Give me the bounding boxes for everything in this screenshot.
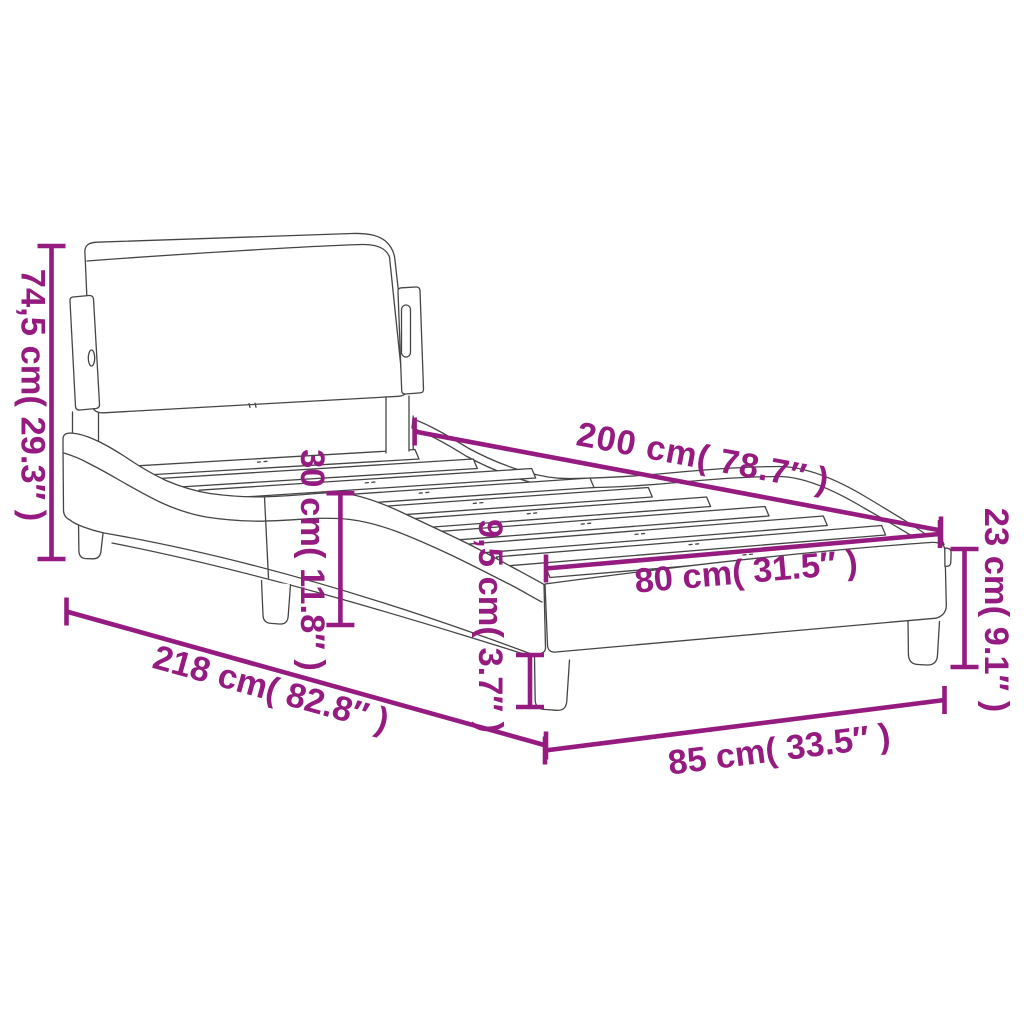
svg-text:23 cm( 9.1″ ): 23 cm( 9.1″ ) bbox=[977, 508, 1015, 712]
svg-text:74,5 cm( 29.3″ ): 74,5 cm( 29.3″ ) bbox=[14, 269, 52, 521]
svg-text:30 cm( 11.8″ ): 30 cm( 11.8″ ) bbox=[293, 449, 331, 671]
svg-text:9,5 cm( 3.7″ ): 9,5 cm( 3.7″ ) bbox=[471, 519, 509, 733]
